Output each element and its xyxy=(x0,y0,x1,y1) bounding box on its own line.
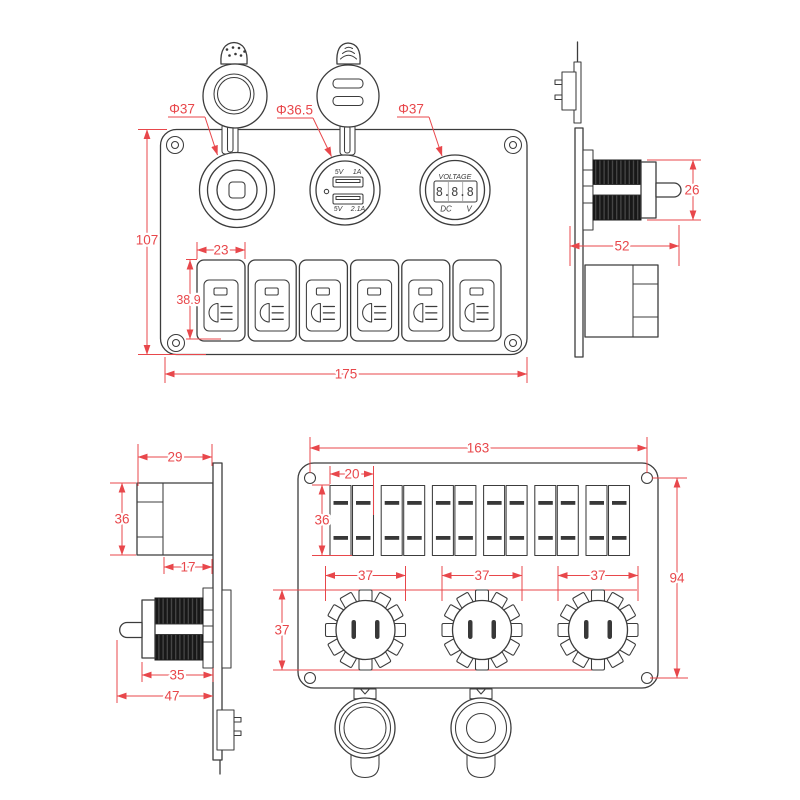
usb-charger-front: 5V 1A 5V 2.1A xyxy=(310,155,380,225)
cap-grip-knob xyxy=(337,43,360,64)
socket-back-row xyxy=(326,590,639,670)
rocker-switch xyxy=(402,260,450,341)
back-view: 163 20 36 37 37 37 37 xyxy=(273,437,688,778)
socket-flange xyxy=(583,150,593,230)
panel-plate-edge xyxy=(575,128,583,357)
socket-contact-pin xyxy=(656,183,681,197)
voltmeter-front: VOLTAGE 8.8.8 DC V xyxy=(420,155,490,225)
socket-contact-pin xyxy=(120,623,142,638)
dim-label-switch-side-height: 36 xyxy=(114,512,129,527)
headlight-icon xyxy=(260,304,283,323)
headlight-icon xyxy=(363,304,386,323)
dim-label-cutout-height: 36 xyxy=(314,513,329,528)
power-socket-front xyxy=(200,153,275,228)
rocker-switch xyxy=(351,260,399,341)
rocker-switch xyxy=(197,260,245,341)
headlight-icon xyxy=(465,304,488,323)
rocker-switch xyxy=(299,260,347,341)
socket-end-cap xyxy=(641,162,656,218)
usb-bottom-voltage-label: 5V xyxy=(334,206,344,213)
dim-label-back-height: 94 xyxy=(669,571,685,586)
dust-cap-back xyxy=(451,689,511,778)
dim-label-total-depth: 47 xyxy=(164,689,179,704)
dim-label-back-width: 163 xyxy=(467,441,490,456)
dim-label-voltmeter-diameter: Φ37 xyxy=(398,102,424,117)
dim-label-switch-depth: 29 xyxy=(167,450,182,465)
terminal-block xyxy=(562,72,576,110)
dim-label-front-height: 107 xyxy=(136,233,159,248)
side-view-right: 26 52 xyxy=(555,42,701,357)
socket-end-cap xyxy=(142,600,155,658)
socket-lock-ring-edge xyxy=(222,590,231,668)
dim-label-front-width: 175 xyxy=(335,367,358,382)
dust-cap-back xyxy=(335,689,395,778)
usb-top-amp-label: 1A xyxy=(353,169,362,176)
dust-caps-back xyxy=(335,689,511,778)
usb-dust-cap-open xyxy=(317,43,379,127)
dim-label-socket-height: 37 xyxy=(274,623,289,638)
rocker-switch xyxy=(453,260,501,341)
dim-label-socket2-diameter: 37 xyxy=(474,568,489,583)
voltmeter-digits: 8.8.8 xyxy=(436,185,475,199)
socket-dust-cap-open xyxy=(203,43,267,129)
headlight-icon xyxy=(414,304,437,323)
voltmeter-unit-label: V xyxy=(466,205,472,214)
terminal-block xyxy=(217,710,234,750)
dim-label-usb-diameter: Φ36.5 xyxy=(276,103,313,118)
front-view: 5V 1A 5V 2.1A VOLTAGE 8.8.8 DC V Φ37 Φ36… xyxy=(136,43,527,384)
dim-label-cutout-width: 20 xyxy=(344,467,359,482)
headlight-icon xyxy=(209,304,232,323)
usb-bottom-amp-label: 2.1A xyxy=(350,206,366,213)
headlight-icon xyxy=(311,304,334,323)
dim-label-socket-diameter: Φ37 xyxy=(169,102,195,117)
switch-body-side xyxy=(137,483,213,555)
voltmeter-title: VOLTAGE xyxy=(439,172,472,181)
socket-flange xyxy=(203,588,213,668)
side-view-left: 29 36 17 35 47 xyxy=(110,444,241,774)
cap-grip-knob xyxy=(221,43,247,65)
dim-label-switch-height: 38.9 xyxy=(176,293,200,307)
usb-top-voltage-label: 5V xyxy=(335,169,345,176)
dim-label-thread-length: 35 xyxy=(169,668,184,683)
voltmeter-dc-label: DC xyxy=(440,205,452,214)
dim-label-switch-width: 23 xyxy=(213,243,228,258)
dim-label-socket-length: 52 xyxy=(614,239,629,254)
dim-label-socket3-diameter: 37 xyxy=(590,568,605,583)
rocker-switch xyxy=(248,260,296,341)
dim-label-switch-body-depth: 17 xyxy=(180,560,195,575)
dim-label-socket1-diameter: 37 xyxy=(358,568,373,583)
drawing-canvas: 5V 1A 5V 2.1A VOLTAGE 8.8.8 DC V Φ37 Φ36… xyxy=(0,0,800,800)
dim-label-pin-height: 26 xyxy=(684,183,699,198)
technical-drawing-sheet: 5V 1A 5V 2.1A VOLTAGE 8.8.8 DC V Φ37 Φ36… xyxy=(0,0,800,800)
switch-body-side xyxy=(585,265,658,337)
